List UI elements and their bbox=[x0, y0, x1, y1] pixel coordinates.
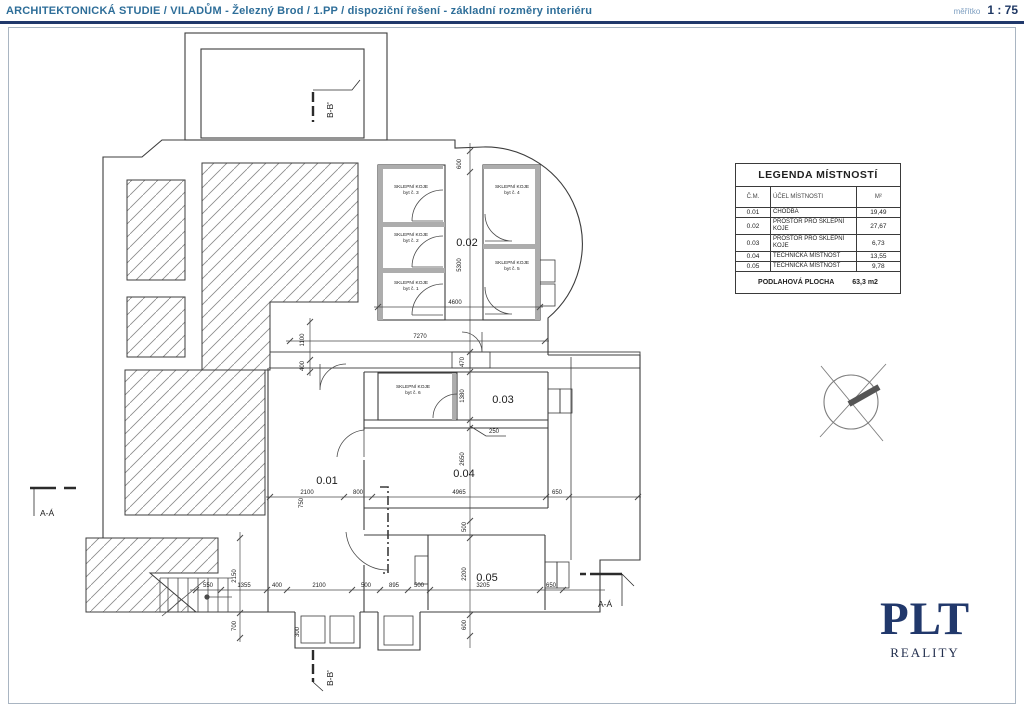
legend-row: 0.01CHODBA19,49 bbox=[736, 208, 901, 218]
koje-byt6-thick-wall bbox=[452, 373, 456, 420]
legend-cell-num: 0.01 bbox=[736, 208, 771, 218]
bay-window-b bbox=[540, 284, 555, 306]
section-label-a-left: A-Á bbox=[40, 508, 55, 518]
room-label: 0.01 bbox=[316, 475, 337, 487]
door-corridor-04 bbox=[337, 430, 364, 457]
dimension-label: 700 bbox=[232, 620, 238, 631]
section-label-b-bottom: B-B' bbox=[325, 670, 335, 686]
koje-label: SKLEPNÍ KOJEbyt č. 5 bbox=[495, 259, 529, 272]
section-b-top-tick bbox=[313, 80, 360, 90]
room05-recess bbox=[415, 556, 428, 584]
logo-text: PLT bbox=[858, 595, 992, 643]
annex-inner-wall bbox=[201, 49, 364, 138]
dimension-label: 4600 bbox=[448, 300, 462, 306]
dimension-label: 1355 bbox=[237, 583, 251, 589]
dimension-label: 400 bbox=[300, 360, 306, 371]
door-byt5 bbox=[485, 287, 512, 314]
dimension-label: 300 bbox=[295, 626, 301, 637]
koje-right-thick-wall bbox=[535, 165, 540, 320]
dash-dot-lines bbox=[380, 487, 388, 573]
koje-label: SKLEPNÍ KOJEbyt č. 3 bbox=[394, 183, 428, 196]
dimension-label: 500 bbox=[414, 583, 425, 589]
dimension-label: 600 bbox=[462, 619, 468, 630]
legend-cell-num: 0.04 bbox=[736, 252, 771, 262]
dimension-label: 2150 bbox=[232, 569, 238, 583]
door-mid-wall bbox=[462, 332, 482, 352]
protrusion-1-box-b bbox=[330, 616, 354, 643]
service-trace-line bbox=[380, 487, 388, 573]
logo-subtitle: REALITY bbox=[858, 645, 992, 661]
koje-byt6-box bbox=[378, 373, 457, 420]
legend-cell-area: 6,73 bbox=[856, 235, 900, 252]
dimension-label: 895 bbox=[389, 583, 400, 589]
section-a-right-tick bbox=[622, 574, 634, 606]
room05-window-b bbox=[557, 562, 569, 588]
koje-label: SKLEPNÍ KOJEbyt č. 2 bbox=[394, 231, 428, 244]
dimension-label: 750 bbox=[299, 497, 305, 508]
dimension-label: 650 bbox=[552, 490, 563, 496]
dimension-label: 2650 bbox=[460, 452, 466, 466]
dimension-label: 470 bbox=[460, 356, 466, 367]
hatched-walls-group bbox=[86, 163, 358, 612]
legend-cell-use: CHODBA bbox=[770, 208, 856, 218]
koje-left-thick-wall bbox=[378, 165, 383, 320]
legend-cell-use: TECHNICKÁ MÍSTNOST bbox=[770, 262, 856, 272]
legend-cell-area: 13,55 bbox=[856, 252, 900, 262]
legend-cell-area: 27,67 bbox=[856, 218, 900, 235]
legend-row: 0.02PROSTOR PRO SKLEPNÍ KOJE27,67 bbox=[736, 218, 901, 235]
legend-table: LEGENDA MÍSTNOSTÍ Č.M. ÚČEL MÍSTNOSTI M²… bbox=[735, 163, 901, 294]
room-label: 0.02 bbox=[456, 237, 477, 249]
room-label: 0.04 bbox=[453, 468, 474, 480]
dimension-label: 2100 bbox=[312, 583, 326, 589]
legend-cell-use: PROSTOR PRO SKLEPNÍ KOJE bbox=[770, 218, 856, 235]
legend-footer: PODLAHOVÁ PLOCHA 63,3 m2 bbox=[736, 272, 901, 294]
legend-footer-label: PODLAHOVÁ PLOCHA bbox=[758, 279, 834, 286]
legend-cell-area: 19,49 bbox=[856, 208, 900, 218]
koje-cells-group bbox=[378, 165, 540, 420]
dimension-label: 250 bbox=[489, 429, 500, 435]
door-byt4 bbox=[485, 214, 512, 241]
hatch-left-tall bbox=[127, 180, 185, 280]
hatch-left-small bbox=[127, 297, 185, 357]
room05-walls bbox=[364, 535, 545, 610]
dimension-label: 500 bbox=[361, 583, 372, 589]
room03-window-b bbox=[560, 389, 572, 413]
legend-cell-use: PROSTOR PRO SKLEPNÍ KOJE bbox=[770, 235, 856, 252]
bottom-protrusion-1 bbox=[295, 612, 360, 648]
legend-cell-num: 0.03 bbox=[736, 235, 771, 252]
koje-label: SKLEPNÍ KOJEbyt č. 4 bbox=[495, 183, 529, 196]
protrusion-2-box bbox=[384, 616, 413, 645]
koje-partition-2 bbox=[380, 268, 445, 273]
door-room05 bbox=[346, 532, 388, 570]
legend-cell-area: 9,78 bbox=[856, 262, 900, 272]
dimension-label: 1100 bbox=[300, 333, 306, 347]
dimension-label: 800 bbox=[353, 490, 364, 496]
legend-cell-use: TECHNICKÁ MÍSTNOST bbox=[770, 252, 856, 262]
legend-col-use: ÚČEL MÍSTNOSTI bbox=[770, 187, 856, 208]
north-thick-bar bbox=[849, 387, 879, 404]
dimension-label: 500 bbox=[462, 521, 468, 532]
dimension-label: 5300 bbox=[457, 258, 463, 272]
protrusion-1-box-a bbox=[301, 616, 325, 643]
dimension-label: 7270 bbox=[413, 334, 427, 340]
dimension-label: 600 bbox=[457, 158, 463, 169]
koje-partition-1 bbox=[380, 222, 445, 227]
room-label: 0.05 bbox=[476, 572, 497, 584]
section-label-b-top: B-B' bbox=[325, 102, 335, 118]
mid-wall-band bbox=[270, 352, 640, 368]
dimension-label: 4965 bbox=[452, 490, 466, 496]
legend-cell-num: 0.05 bbox=[736, 262, 771, 272]
koje-right-top-wall bbox=[483, 165, 540, 169]
room03-window-a bbox=[548, 389, 560, 413]
legend-footer-value: 63,3 m2 bbox=[852, 279, 878, 286]
dimension-label: 550 bbox=[203, 583, 214, 589]
north-symbol bbox=[820, 364, 886, 441]
legend-row: 0.05TECHNICKÁ MÍSTNOST9,78 bbox=[736, 262, 901, 272]
stair-walk-dot bbox=[205, 595, 209, 599]
legend-title: LEGENDA MÍSTNOSTÍ bbox=[736, 164, 901, 187]
legend-row: 0.03PROSTOR PRO SKLEPNÍ KOJE6,73 bbox=[736, 235, 901, 252]
dimension-label: 650 bbox=[546, 583, 557, 589]
koje-label: SKLEPNÍ KOJEbyt č. 6 bbox=[396, 383, 430, 396]
dimension-label: 2100 bbox=[300, 490, 314, 496]
hatch-lower-big bbox=[125, 370, 265, 515]
dimension-label: 400 bbox=[272, 583, 283, 589]
dimension-label: 1380 bbox=[460, 389, 466, 403]
company-logo: PLT REALITY bbox=[858, 595, 992, 661]
hatch-top-big bbox=[202, 163, 358, 370]
legend-col-num: Č.M. bbox=[736, 187, 771, 208]
room-label: 0.03 bbox=[492, 394, 513, 406]
koje-partition-3 bbox=[483, 244, 540, 249]
section-label-a-right: A-Á bbox=[598, 599, 613, 609]
koje-label: SKLEPNÍ KOJEbyt č. 1 bbox=[394, 279, 428, 292]
koje-left-top-wall bbox=[380, 165, 443, 169]
legend-cell-num: 0.02 bbox=[736, 218, 771, 235]
bay-window-a bbox=[540, 260, 555, 282]
section-b-bottom-tick bbox=[313, 682, 323, 691]
dimension-label: 2200 bbox=[462, 567, 468, 581]
legend-col-area: M² bbox=[856, 187, 900, 208]
flue-block-b bbox=[470, 352, 490, 368]
legend-row: 0.04TECHNICKÁ MÍSTNOST13,55 bbox=[736, 252, 901, 262]
